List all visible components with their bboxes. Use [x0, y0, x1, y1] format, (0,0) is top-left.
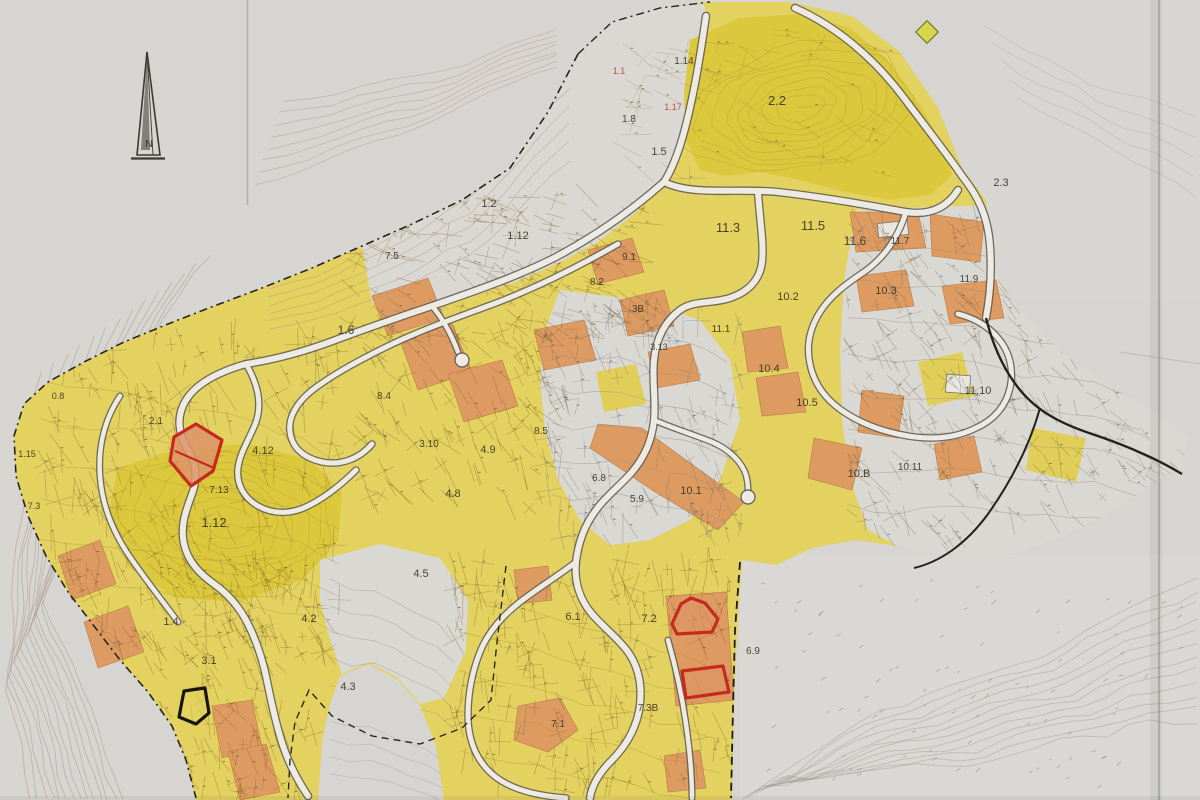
parcel-label: 1.6: [338, 323, 355, 337]
parcel-label: 7.1: [551, 719, 565, 730]
parcel-label: 10.2: [777, 291, 798, 303]
parcel-label: 1.2: [481, 198, 496, 210]
parcel-label: 3.10: [419, 439, 439, 450]
parcel-label: 10.3: [875, 285, 896, 297]
parcel-label: 11.1: [712, 324, 731, 335]
parcel-label: 1.17: [664, 102, 682, 112]
parcel-label: 1.15: [18, 449, 36, 459]
parcel-label: 2.3: [993, 177, 1008, 189]
parcel-label: 1.12: [507, 230, 528, 242]
parcel-label: 10.5: [796, 397, 817, 409]
parcel-label: 2.2: [768, 93, 786, 108]
parcel-label: 6.9: [746, 646, 760, 657]
parcel-label: 6.8: [592, 473, 606, 484]
parcel-label: 3.1: [201, 655, 216, 667]
parcel-label: 1.14: [674, 56, 694, 67]
parcel-label: 2.1: [149, 416, 163, 427]
north-arrow-n-label: N: [145, 139, 152, 150]
parcel-label: 3B: [632, 304, 645, 315]
parcel-label: 1.8: [622, 114, 636, 125]
parcel-label: 11.3: [716, 220, 740, 235]
parcel-label: 1.5: [651, 146, 666, 158]
parcel-label: 11.6: [844, 234, 867, 248]
parcel-label: 10.11: [898, 462, 923, 473]
parcel-label: 8.4: [377, 391, 391, 402]
parcel-label: 0.8: [52, 391, 65, 401]
parcel-label: 11.10: [965, 385, 992, 397]
parcel-label: 7.3B: [638, 703, 659, 714]
parcel-label: 5.9: [630, 494, 644, 505]
parcel-label: 7.2: [641, 613, 656, 625]
highlighted-parcel-black: [179, 688, 209, 724]
parcel-label: 10.B: [848, 468, 871, 480]
parcel-label: 11.7: [891, 236, 910, 247]
highlighted-parcel-red-south-lower: [682, 666, 729, 698]
parcel-label: 1.1: [613, 66, 626, 76]
parcel-label: 11.9: [960, 274, 979, 285]
parcel-label: 7.13: [209, 485, 229, 496]
parcel-label: 1.12: [201, 515, 226, 530]
parcel-label: 3.13: [650, 342, 668, 352]
parcel-label: 8.2: [590, 277, 604, 288]
parcel-label: 4.5: [413, 568, 428, 580]
parcel-label: 4.9: [480, 444, 495, 456]
parcel-label: 4.8: [445, 488, 460, 500]
parcel-label: 9.1: [622, 252, 636, 263]
parcel-label: 10.4: [758, 363, 779, 375]
parcel-label: 7.5: [385, 251, 399, 262]
parcel-label: 4.3: [340, 681, 355, 693]
parcel-label: 4.2: [301, 613, 316, 625]
parcel-label: 11.5: [801, 218, 825, 233]
parcel-label: 4.12: [252, 445, 273, 457]
cadastral-parcel-map-scan: 2.22.31.141.11.171.81.51.21.127.511.311.…: [0, 0, 1200, 800]
parcel-label: 7.3: [28, 501, 41, 511]
parcel-label: 6.1: [565, 611, 580, 623]
parcel-label: 10.1: [680, 485, 701, 497]
parcel-label: 8.5: [534, 426, 548, 437]
parcel-label: 1.4: [163, 616, 178, 628]
scanned-map-page: 2.22.31.141.11.171.81.51.21.127.511.311.…: [0, 0, 1200, 800]
